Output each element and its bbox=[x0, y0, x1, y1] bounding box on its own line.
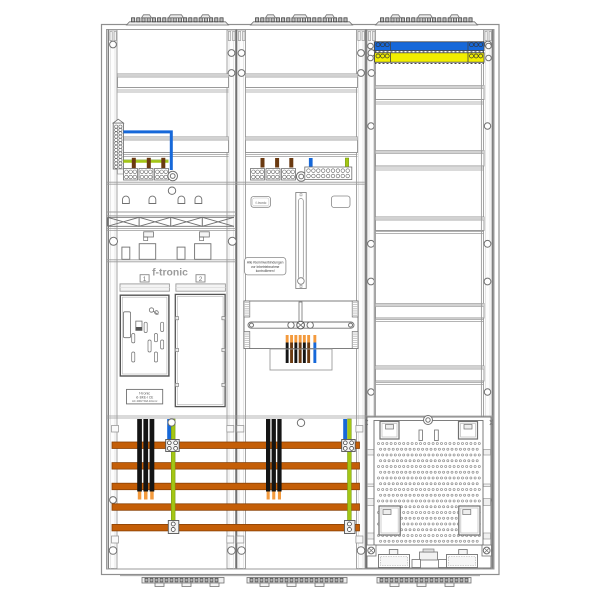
svg-text:♻ BKE-I CE: ♻ BKE-I CE bbox=[136, 395, 153, 399]
svg-text:AC 400V 50A 10mm²: AC 400V 50A 10mm² bbox=[132, 399, 157, 403]
svg-text:1: 1 bbox=[143, 276, 147, 283]
svg-text:f-tronic: f-tronic bbox=[152, 267, 188, 278]
svg-text:kontrollieren!: kontrollieren! bbox=[256, 269, 275, 273]
svg-text:f-tronic: f-tronic bbox=[256, 201, 267, 205]
svg-text:2: 2 bbox=[199, 276, 203, 283]
